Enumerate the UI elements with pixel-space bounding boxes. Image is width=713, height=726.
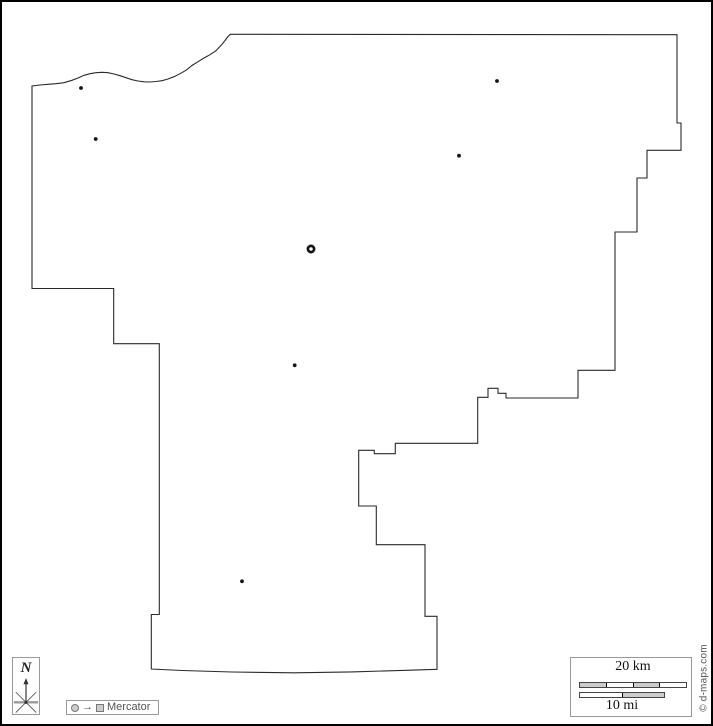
- globe-circle-icon: [71, 704, 79, 712]
- scale-km-label: 20 km: [579, 659, 687, 675]
- city-dot: [94, 137, 98, 141]
- scale-segment: [622, 693, 665, 697]
- map-page: N → Mercator 20 km 10 mi © d-maps.com: [0, 0, 713, 726]
- city-dot: [457, 154, 461, 158]
- county-map: [2, 2, 711, 724]
- city-dot: [293, 363, 297, 367]
- scale-bar-box: 20 km 10 mi: [570, 657, 692, 717]
- scale-segment: [659, 683, 686, 687]
- projection-name: Mercator: [107, 702, 150, 713]
- compass-rose-icon: [13, 677, 39, 714]
- scale-segment: [606, 683, 633, 687]
- county-seat-marker: [308, 246, 314, 252]
- arrow-right-icon: →: [82, 702, 93, 713]
- city-dot: [240, 579, 244, 583]
- north-indicator: N: [12, 657, 40, 715]
- projected-square-icon: [96, 704, 104, 712]
- county-boundary: [32, 34, 681, 673]
- scale-mi-label: 10 mi: [579, 698, 665, 714]
- scale-segment: [633, 683, 660, 687]
- scale-segment: [580, 693, 622, 697]
- projection-legend: → Mercator: [66, 700, 159, 715]
- copyright-text: © d-maps.com: [699, 644, 710, 712]
- north-label: N: [21, 660, 32, 677]
- city-dot: [79, 86, 83, 90]
- scale-segment: [580, 683, 606, 687]
- city-dot: [495, 79, 499, 83]
- scale-bar-km: [579, 682, 687, 688]
